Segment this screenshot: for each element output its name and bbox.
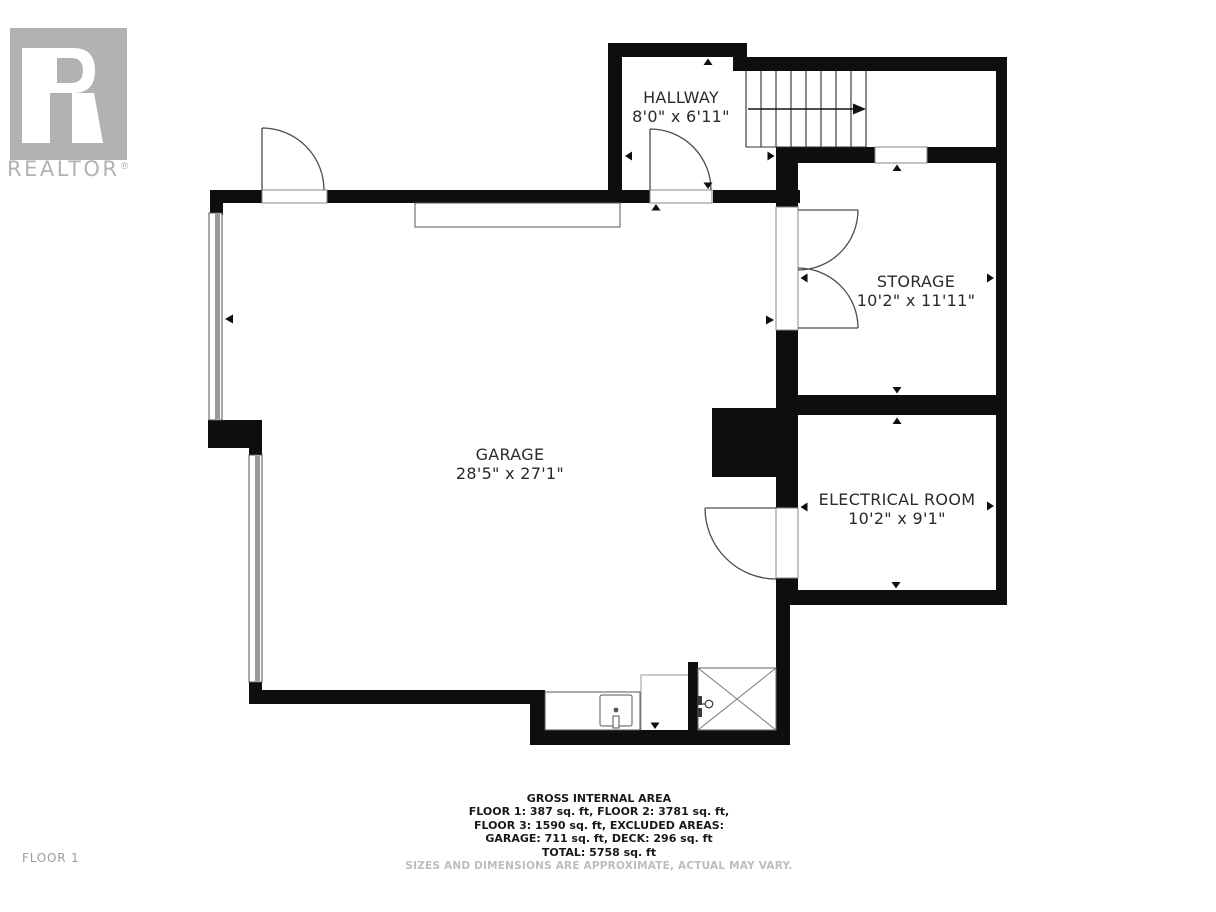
realtor-wordmark: REALTOR® <box>7 157 167 181</box>
stair-direction-arrow-icon <box>853 104 866 115</box>
dimension-arrow-electrical-bottom-icon <box>892 582 901 589</box>
dimension-arrow-hallway-right-icon <box>768 152 775 161</box>
wall-segment <box>776 395 1007 415</box>
dimension-arrow-garage-left-icon <box>225 315 233 324</box>
dimension-arrow-storage-left-icon <box>801 274 808 283</box>
logo-r-stem <box>22 48 50 143</box>
window-glass <box>255 456 260 681</box>
structural-block <box>712 408 776 477</box>
room-label-electrical: ELECTRICAL ROOM 10'2" x 9'1" <box>770 490 1024 528</box>
area-summary: GROSS INTERNAL AREA FLOOR 1: 387 sq. ft,… <box>399 792 799 873</box>
wall-segment <box>327 190 651 203</box>
realtor-r-glyph <box>10 28 127 160</box>
door-swing-electrical <box>705 508 776 579</box>
room-dimensions: 10'2" x 9'1" <box>770 509 1024 528</box>
floor-number-label: FLOOR 1 <box>22 851 79 865</box>
valve-handle <box>698 708 702 717</box>
room-dimensions: 8'0" x 6'11" <box>581 107 781 126</box>
realtor-logo-icon <box>10 28 127 160</box>
workbench <box>415 203 620 227</box>
logo-r-bowl <box>50 48 95 93</box>
wall-segment <box>210 190 223 215</box>
wall-segment <box>688 662 698 740</box>
wall-segment <box>208 420 262 448</box>
wall-segment <box>250 690 543 704</box>
door-opening <box>650 190 712 203</box>
sink-faucet <box>613 716 619 728</box>
area-summary-line: GARAGE: 711 sq. ft, DECK: 296 sq. ft <box>399 832 799 845</box>
wall-segment <box>543 730 790 745</box>
dimension-arrow-hallway-left-icon <box>625 152 632 161</box>
wall-segment <box>776 605 790 745</box>
area-summary-line: FLOOR 1: 387 sq. ft, FLOOR 2: 3781 sq. f… <box>399 805 799 818</box>
door-swing-hallway <box>650 129 711 190</box>
wall-segment <box>608 43 747 57</box>
dimension-arrow-storage-bottom-icon <box>893 387 902 394</box>
door-swing-storage-upper <box>798 210 858 270</box>
window-glass <box>215 214 220 419</box>
area-summary-line: TOTAL: 5758 sq. ft <box>399 846 799 859</box>
step-platform <box>641 675 688 730</box>
dimension-arrow-hallway-top-icon <box>704 59 713 66</box>
realtor-wordmark-text: REALTOR <box>7 157 119 181</box>
room-name: GARAGE <box>408 445 612 464</box>
valve-handle <box>698 696 702 705</box>
logo-r-leg <box>72 93 103 143</box>
dimension-arrow-electrical-top-icon <box>893 418 902 425</box>
wall-segment <box>927 147 1007 163</box>
area-summary-title: GROSS INTERNAL AREA <box>399 792 799 805</box>
room-dimensions: 10'2" x 11'11" <box>814 291 1018 310</box>
area-summary-line: FLOOR 3: 1590 sq. ft, EXCLUDED AREAS: <box>399 819 799 832</box>
room-label-garage: GARAGE 28'5" x 27'1" <box>408 445 612 483</box>
room-label-hallway: HALLWAY 8'0" x 6'11" <box>581 88 781 126</box>
door-opening <box>776 207 798 330</box>
wall-segment <box>776 590 1007 605</box>
registered-mark: ® <box>119 161 129 172</box>
room-name: ELECTRICAL ROOM <box>770 490 1024 509</box>
dimension-arrow-garage-right-icon <box>766 316 774 325</box>
door-swing-garage-exterior <box>262 128 324 190</box>
dimension-arrow-storage-top-icon <box>893 165 902 172</box>
room-name: HALLWAY <box>581 88 781 107</box>
door-opening <box>262 190 327 203</box>
area-summary-disclaimer: SIZES AND DIMENSIONS ARE APPROXIMATE, AC… <box>399 860 799 873</box>
sink-drain-icon <box>614 708 619 713</box>
wall-segment <box>776 330 798 508</box>
wall-segment <box>776 147 798 207</box>
floorplan-page: REALTOR® HALLWAY 8'0" x 6'11" STORAGE 10… <box>0 0 1216 912</box>
room-dimensions: 28'5" x 27'1" <box>408 464 612 483</box>
room-name: STORAGE <box>814 272 1018 291</box>
dimension-arrow-garage-top-icon <box>652 204 661 211</box>
wall-segment <box>733 57 1007 71</box>
wall-opening <box>875 147 927 163</box>
dimension-arrow-garage-bottom-icon <box>651 723 660 730</box>
wall-segment <box>530 690 545 745</box>
room-label-storage: STORAGE 10'2" x 11'11" <box>814 272 1018 310</box>
